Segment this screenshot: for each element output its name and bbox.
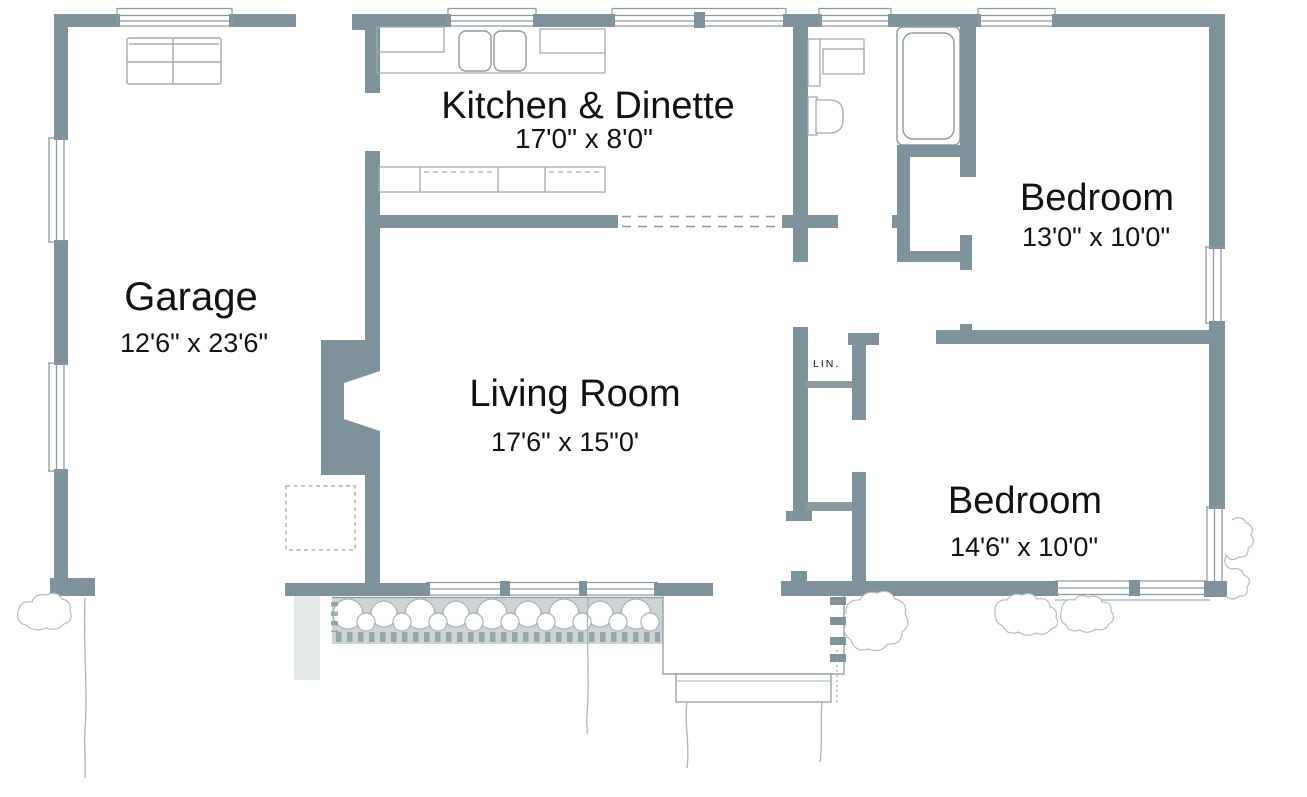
svg-text:13'0" x 10'0": 13'0" x 10'0" [1022,222,1170,252]
svg-text:Bedroom: Bedroom [948,480,1102,522]
svg-text:12'6" x 23'6": 12'6" x 23'6" [120,328,268,358]
svg-text:17'6" x 15"0': 17'6" x 15"0' [491,427,639,457]
svg-text:LIN.: LIN. [813,358,840,370]
svg-text:Bedroom: Bedroom [1020,177,1174,219]
svg-text:14'6" x 10'0": 14'6" x 10'0" [950,532,1098,562]
svg-text:17'0" x 8'0": 17'0" x 8'0" [515,123,653,154]
svg-text:Kitchen & Dinette: Kitchen & Dinette [441,85,735,127]
svg-text:Living Room: Living Room [469,373,680,415]
svg-text:Garage: Garage [124,275,257,319]
